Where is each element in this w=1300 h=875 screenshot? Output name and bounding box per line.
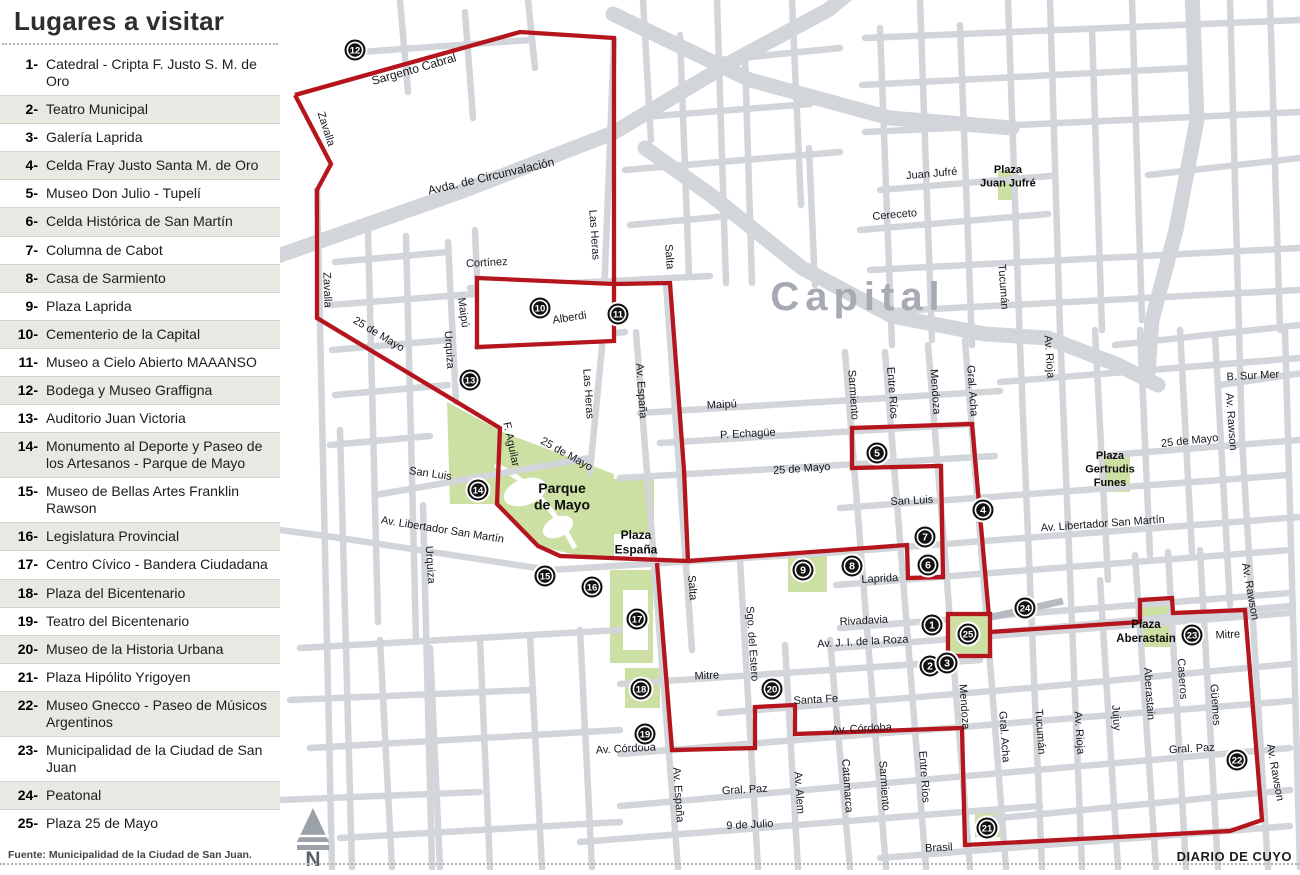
street-label: Rivadavia bbox=[839, 614, 889, 629]
svg-text:6: 6 bbox=[925, 560, 931, 572]
map-marker-13: 13 bbox=[459, 369, 482, 392]
street-label: Av. Rawson bbox=[1223, 393, 1239, 451]
street-label: Cortínez bbox=[466, 256, 508, 270]
street-label: Maipú bbox=[455, 297, 471, 328]
page-title: Lugares a visitar bbox=[14, 6, 280, 37]
item-number: 8- bbox=[0, 270, 46, 287]
svg-text:21: 21 bbox=[982, 824, 993, 835]
item-label: Columna de Cabot bbox=[46, 242, 276, 259]
street-label: Av. España bbox=[633, 363, 649, 420]
svg-text:5: 5 bbox=[874, 448, 880, 460]
svg-text:22: 22 bbox=[1232, 756, 1243, 767]
item-number: 6- bbox=[0, 213, 46, 230]
list-item-10: 10-Cementerio de la Capital bbox=[0, 320, 280, 348]
map-marker-16: 16 bbox=[581, 576, 604, 599]
item-number: 12- bbox=[0, 382, 46, 399]
item-label: Plaza del Bicentenario bbox=[46, 585, 276, 602]
item-label: Plaza Laprida bbox=[46, 298, 276, 315]
street-label: B. Sur Mer bbox=[1226, 369, 1279, 384]
map-marker-19: 19 bbox=[634, 723, 657, 746]
map-marker-8: 8 bbox=[841, 555, 864, 578]
plaza-label: Plaza bbox=[1131, 619, 1161, 631]
svg-text:3: 3 bbox=[944, 658, 950, 670]
svg-text:12: 12 bbox=[350, 46, 361, 57]
map-marker-17: 17 bbox=[626, 608, 649, 631]
map-marker-3: 3 bbox=[936, 652, 959, 675]
item-label: Teatro del Bicentenario bbox=[46, 613, 276, 630]
street-label: Gral. Paz bbox=[722, 783, 768, 797]
street-label: Mendoza bbox=[927, 369, 942, 416]
svg-text:18: 18 bbox=[636, 685, 647, 696]
list-item-19: 19-Teatro del Bicentenario bbox=[0, 607, 280, 635]
item-label: Plaza 25 de Mayo bbox=[46, 815, 276, 832]
map-marker-12: 12 bbox=[344, 39, 367, 62]
plaza-label: España bbox=[615, 543, 658, 557]
bottom-dotted-divider bbox=[0, 863, 1300, 865]
map-marker-23: 23 bbox=[1181, 624, 1204, 647]
plaza-label: Gertrudis bbox=[1085, 464, 1135, 476]
svg-text:4: 4 bbox=[980, 505, 986, 517]
list-item-11: 11-Museo a Cielo Abierto MAAANSO bbox=[0, 348, 280, 376]
map-marker-14: 14 bbox=[467, 479, 490, 502]
item-label: Legislatura Provincial bbox=[46, 528, 276, 545]
item-label: Monumento al Deporte y Paseo de los Arte… bbox=[46, 438, 276, 472]
item-number: 15- bbox=[0, 483, 46, 500]
city-map: CapitalSargento CabralZavallaZavallaAvda… bbox=[280, 0, 1300, 870]
item-number: 23- bbox=[0, 742, 46, 759]
item-label: Museo de la Historia Urbana bbox=[46, 641, 276, 658]
map-marker-9: 9 bbox=[792, 559, 815, 582]
list-item-2: 2-Teatro Municipal bbox=[0, 95, 280, 123]
map-marker-6: 6 bbox=[917, 554, 940, 577]
list-item-22: 22-Museo Gnecco - Paseo de Músicos Argen… bbox=[0, 691, 280, 736]
list-item-16: 16-Legislatura Provincial bbox=[0, 522, 280, 550]
item-number: 14- bbox=[0, 438, 46, 455]
street-label: Av. Libertador San Martín bbox=[380, 514, 505, 545]
map-marker-11: 11 bbox=[607, 303, 630, 326]
map-marker-10: 10 bbox=[529, 297, 552, 320]
item-label: Municipalidad de la Ciudad de San Juan bbox=[46, 742, 276, 776]
svg-text:25: 25 bbox=[963, 630, 974, 641]
svg-text:2: 2 bbox=[927, 661, 933, 673]
title-dotted-divider bbox=[2, 43, 278, 45]
item-number: 19- bbox=[0, 613, 46, 630]
street-label: Las Heras bbox=[586, 209, 602, 260]
street-label: Av. J. I. de la Roza bbox=[817, 634, 910, 651]
street-grid bbox=[280, 0, 1300, 868]
street-label: Av. Rioja bbox=[1042, 335, 1057, 380]
plaza-label: Aberastain bbox=[1116, 633, 1175, 645]
street-label: Avda. de Circunvalación bbox=[427, 155, 556, 198]
street-label: Brasil bbox=[925, 841, 953, 854]
plaza-label: Plaza bbox=[621, 528, 652, 542]
svg-text:23: 23 bbox=[1187, 631, 1198, 642]
svg-text:9: 9 bbox=[800, 565, 806, 577]
svg-text:20: 20 bbox=[767, 685, 778, 696]
list-item-6: 6-Celda Histórica de San Martín bbox=[0, 207, 280, 235]
item-label: Plaza Hipólito Yrigoyen bbox=[46, 669, 276, 686]
item-number: 9- bbox=[0, 298, 46, 315]
item-label: Auditorio Juan Victoria bbox=[46, 410, 276, 427]
places-panel: Lugares a visitar 1-Catedral - Cripta F.… bbox=[0, 0, 280, 870]
street-label: Urquiza bbox=[442, 330, 457, 370]
street-label: Laprida bbox=[861, 572, 899, 586]
item-number: 7- bbox=[0, 242, 46, 259]
map-marker-21: 21 bbox=[976, 817, 999, 840]
item-number: 16- bbox=[0, 528, 46, 545]
item-label: Celda Histórica de San Martín bbox=[46, 213, 276, 230]
plaza-label: de Mayo bbox=[534, 497, 590, 513]
list-item-7: 7-Columna de Cabot bbox=[0, 236, 280, 264]
item-number: 25- bbox=[0, 815, 46, 832]
item-number: 4- bbox=[0, 157, 46, 174]
list-item-17: 17-Centro Cívico - Bandera Ciudadana bbox=[0, 550, 280, 578]
svg-text:14: 14 bbox=[473, 486, 484, 497]
list-item-14: 14-Monumento al Deporte y Paseo de los A… bbox=[0, 432, 280, 477]
street-label: Salta bbox=[685, 575, 699, 602]
map-marker-24: 24 bbox=[1014, 597, 1037, 620]
street-label: Mitre bbox=[694, 669, 719, 682]
svg-text:10: 10 bbox=[535, 304, 546, 315]
item-label: Galería Laprida bbox=[46, 129, 276, 146]
item-number: 24- bbox=[0, 787, 46, 804]
item-label: Centro Cívico - Bandera Ciudadana bbox=[46, 556, 276, 573]
svg-text:N: N bbox=[305, 848, 320, 870]
svg-text:16: 16 bbox=[587, 583, 598, 594]
list-item-25: 25-Plaza 25 de Mayo bbox=[0, 809, 280, 837]
region-label: Capital bbox=[770, 275, 945, 319]
item-label: Casa de Sarmiento bbox=[46, 270, 276, 287]
list-item-15: 15-Museo de Bellas Artes Franklin Rawson bbox=[0, 477, 280, 522]
item-label: Museo de Bellas Artes Franklin Rawson bbox=[46, 483, 276, 517]
item-number: 17- bbox=[0, 556, 46, 573]
list-item-9: 9-Plaza Laprida bbox=[0, 292, 280, 320]
street-label: Juan Jufré bbox=[906, 166, 958, 182]
source-note: Fuente: Municipalidad de la Ciudad de Sa… bbox=[8, 849, 252, 861]
plaza-label: Plaza bbox=[1096, 450, 1125, 462]
map-marker-1: 1 bbox=[921, 614, 944, 637]
list-item-21: 21-Plaza Hipólito Yrigoyen bbox=[0, 663, 280, 691]
list-item-13: 13-Auditorio Juan Victoria bbox=[0, 404, 280, 432]
street-label: Salta bbox=[662, 244, 676, 271]
plaza-label: Funes bbox=[1094, 477, 1126, 489]
map-marker-7: 7 bbox=[914, 526, 937, 549]
svg-text:13: 13 bbox=[465, 376, 476, 387]
item-number: 13- bbox=[0, 410, 46, 427]
street-label: Cereceto bbox=[872, 207, 918, 223]
item-number: 22- bbox=[0, 697, 46, 714]
street-label: Gral. Acha bbox=[964, 365, 980, 418]
plaza-label: Parque bbox=[538, 480, 586, 496]
street-label: Gral. Paz bbox=[1169, 742, 1215, 756]
street-label: Jujuy bbox=[1109, 705, 1123, 732]
svg-text:24: 24 bbox=[1020, 604, 1031, 615]
street-label: Zavalla bbox=[320, 272, 333, 309]
item-label: Museo Gnecco - Paseo de Músicos Argentin… bbox=[46, 697, 276, 731]
map-marker-15: 15 bbox=[534, 565, 557, 588]
street-label: San Luis bbox=[890, 494, 934, 508]
street-label: 9 de Julio bbox=[726, 818, 774, 832]
places-list: 1-Catedral - Cripta F. Justo S. M. de Or… bbox=[0, 51, 280, 837]
list-item-3: 3-Galería Laprida bbox=[0, 123, 280, 151]
item-number: 18- bbox=[0, 585, 46, 602]
item-number: 2- bbox=[0, 101, 46, 118]
map-marker-4: 4 bbox=[972, 499, 995, 522]
list-item-4: 4-Celda Fray Justo Santa M. de Oro bbox=[0, 151, 280, 179]
svg-text:1: 1 bbox=[929, 620, 935, 632]
item-label: Museo Don Julio - Tupelí bbox=[46, 185, 276, 202]
list-item-1: 1-Catedral - Cripta F. Justo S. M. de Or… bbox=[0, 51, 280, 95]
item-label: Catedral - Cripta F. Justo S. M. de Oro bbox=[46, 56, 276, 90]
street-label: 25 de Mayo bbox=[773, 461, 831, 477]
map-marker-5: 5 bbox=[866, 442, 889, 465]
item-label: Celda Fray Justo Santa M. de Oro bbox=[46, 157, 276, 174]
street-label: Las Heras bbox=[580, 368, 596, 419]
item-number: 11- bbox=[0, 354, 46, 371]
item-number: 10- bbox=[0, 326, 46, 343]
map-marker-20: 20 bbox=[761, 678, 784, 701]
item-label: Teatro Municipal bbox=[46, 101, 276, 118]
svg-text:8: 8 bbox=[849, 561, 855, 573]
infographic-page: { "panel": { "title": "Lugares a visitar… bbox=[0, 0, 1300, 870]
street-label: Av. Rioja bbox=[1072, 711, 1087, 756]
svg-text:15: 15 bbox=[540, 572, 551, 583]
map-canvas: CapitalSargento CabralZavallaZavallaAvda… bbox=[280, 0, 1300, 870]
plaza-label: Juan Jufré bbox=[980, 178, 1036, 190]
item-number: 21- bbox=[0, 669, 46, 686]
list-item-24: 24-Peatonal bbox=[0, 781, 280, 809]
item-label: Cementerio de la Capital bbox=[46, 326, 276, 343]
map-marker-22: 22 bbox=[1226, 749, 1249, 772]
map-marker-18: 18 bbox=[630, 678, 653, 701]
item-label: Bodega y Museo Graffigna bbox=[46, 382, 276, 399]
item-number: 3- bbox=[0, 129, 46, 146]
list-item-5: 5-Museo Don Julio - Tupelí bbox=[0, 179, 280, 207]
street-label: Mitre bbox=[1215, 628, 1240, 641]
list-item-23: 23-Municipalidad de la Ciudad de San Jua… bbox=[0, 736, 280, 781]
svg-text:17: 17 bbox=[632, 615, 643, 626]
plaza-label: Plaza bbox=[994, 164, 1023, 176]
svg-text:11: 11 bbox=[613, 310, 624, 321]
credit: DIARIO DE CUYO bbox=[1177, 849, 1292, 864]
street-label: Santa Fe bbox=[793, 693, 838, 707]
north-arrow-icon: N bbox=[297, 808, 329, 870]
list-item-12: 12-Bodega y Museo Graffigna bbox=[0, 376, 280, 404]
item-number: 5- bbox=[0, 185, 46, 202]
item-number: 1- bbox=[0, 56, 46, 73]
svg-text:7: 7 bbox=[922, 532, 928, 544]
item-label: Museo a Cielo Abierto MAAANSO bbox=[46, 354, 276, 371]
item-label: Peatonal bbox=[46, 787, 276, 804]
item-number: 20- bbox=[0, 641, 46, 658]
street-label: Maipú bbox=[707, 398, 738, 412]
list-item-8: 8-Casa de Sarmiento bbox=[0, 264, 280, 292]
list-item-18: 18-Plaza del Bicentenario bbox=[0, 579, 280, 607]
map-marker-25: 25 bbox=[957, 623, 980, 646]
list-item-20: 20-Museo de la Historia Urbana bbox=[0, 635, 280, 663]
svg-text:19: 19 bbox=[640, 730, 651, 741]
